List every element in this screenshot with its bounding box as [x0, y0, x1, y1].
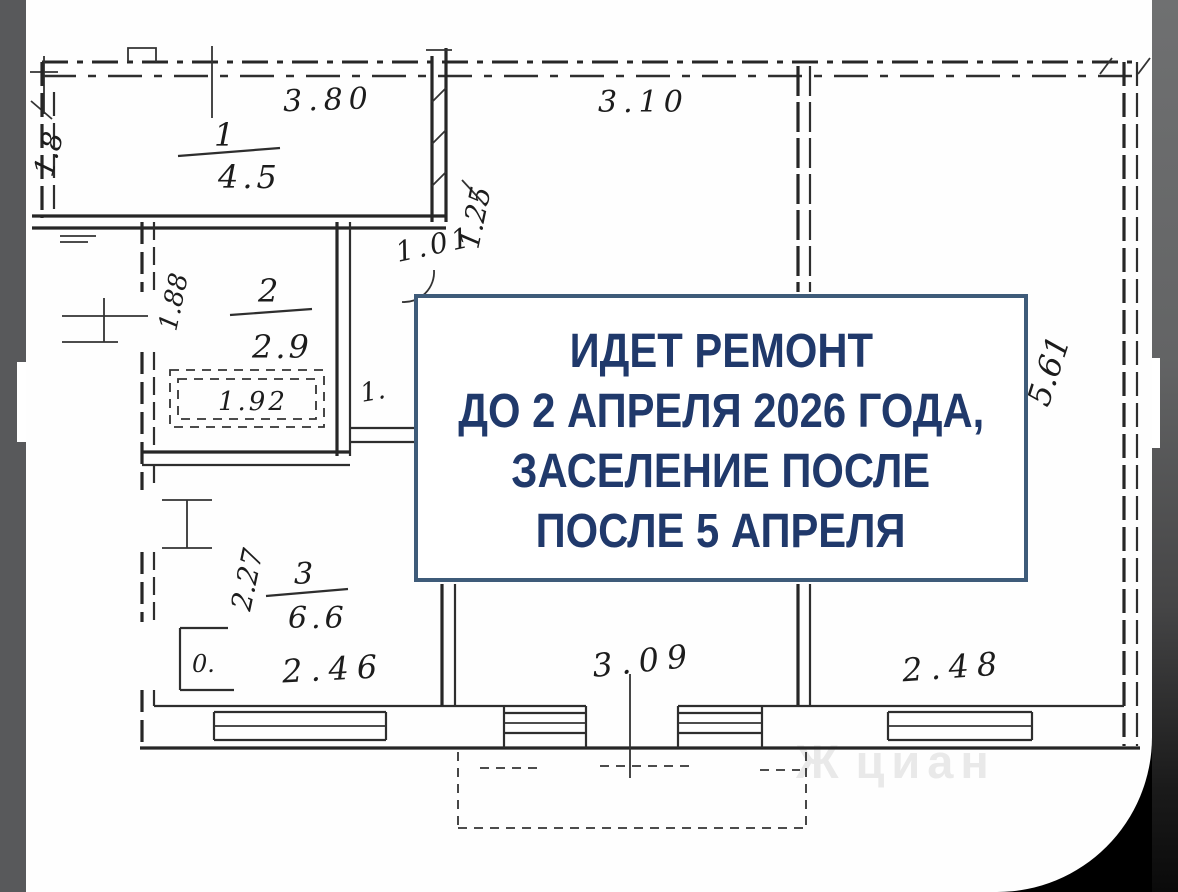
viewer-right-notch: [1152, 358, 1160, 448]
svg-text:2: 2: [257, 272, 278, 310]
watermark-text: циан: [855, 734, 995, 789]
right-wall: [1100, 58, 1150, 746]
svg-text:2.9: 2.9: [251, 328, 312, 366]
room1-label: 1 4.5: [178, 116, 281, 196]
svg-text:4.5: 4.5: [217, 158, 281, 196]
dim-top-left: 3.80: [282, 81, 374, 119]
svg-text:3.80: 3.80: [282, 81, 374, 119]
balcony-outline: [458, 752, 806, 828]
watermark: Ж циан: [796, 734, 996, 789]
svg-text:2.27: 2.27: [224, 545, 269, 614]
door-mark-middle: [162, 500, 212, 548]
svg-text:6.6: 6.6: [288, 601, 348, 636]
dim-bath-left-height: 1.88: [154, 271, 195, 334]
dim-bottom-right: 2.48: [900, 644, 1007, 689]
dim-left-height: 1.8: [27, 128, 70, 180]
viewer-left-notch: [17, 362, 26, 442]
balcony-window-left: [504, 706, 586, 748]
room3-label: 3 6.6: [266, 557, 348, 636]
room1-bottom-wall: [32, 216, 446, 242]
listing-photo-viewer: 3.80 3.10 1.8 1.25 1.01 1 4.5 2: [0, 0, 1178, 892]
dim-top-right: 3.10: [598, 85, 689, 120]
dim-bathtub: 1.92: [218, 387, 288, 417]
dim-closet: 0.: [192, 650, 215, 678]
floor-plan-photo: 3.80 3.10 1.8 1.25 1.01 1 4.5 2: [26, 0, 1152, 892]
hall-separator-wall: [426, 48, 452, 222]
svg-text:3.10: 3.10: [598, 85, 689, 120]
dim-bottom-center: 3.09: [590, 636, 697, 685]
room3-right-wall: [442, 584, 455, 706]
door-mark-upper: [62, 298, 148, 342]
svg-text:2.48: 2.48: [900, 644, 1007, 689]
notice-line-2: ДО 2 АПРЕЛЯ 2026 ГОДА,: [458, 382, 984, 442]
dim-right-height: 5.61: [1019, 331, 1077, 411]
notice-line-3: ЗАСЕЛЕНИЕ ПОСЛЕ: [512, 442, 931, 502]
window-left: [214, 712, 386, 740]
notice-line-1: ИДЕТ РЕМОНТ: [569, 322, 872, 382]
svg-text:1.8: 1.8: [27, 128, 70, 180]
balcony-window-right: [678, 706, 762, 748]
viewer-right-strip: [1152, 0, 1178, 892]
top-wall: [42, 46, 1132, 118]
svg-text:0.: 0.: [192, 650, 215, 678]
svg-text:1.88: 1.88: [154, 271, 195, 334]
svg-text:1.: 1.: [358, 375, 388, 409]
room2-label: 2 2.9: [230, 272, 312, 366]
svg-text:2.46: 2.46: [280, 647, 386, 690]
svg-text:1.92: 1.92: [218, 387, 288, 417]
viewer-left-strip: [0, 0, 26, 892]
dim-room3-left-height: 2.27: [224, 545, 269, 614]
left-wall-main: [142, 222, 154, 748]
renovation-notice: ИДЕТ РЕМОНТ ДО 2 АПРЕЛЯ 2026 ГОДА, ЗАСЕЛ…: [414, 294, 1028, 582]
svg-text:3.09: 3.09: [590, 636, 697, 685]
dim-room3-width: 2.46: [280, 647, 386, 690]
watermark-logo-glyph: Ж: [796, 734, 845, 789]
svg-text:1: 1: [214, 116, 234, 154]
dim-small-door: 1.: [358, 375, 388, 409]
svg-text:3: 3: [294, 557, 313, 592]
svg-text:5.61: 5.61: [1019, 331, 1077, 411]
notice-line-4: ПОСЛЕ 5 АПРЕЛЯ: [536, 502, 906, 562]
